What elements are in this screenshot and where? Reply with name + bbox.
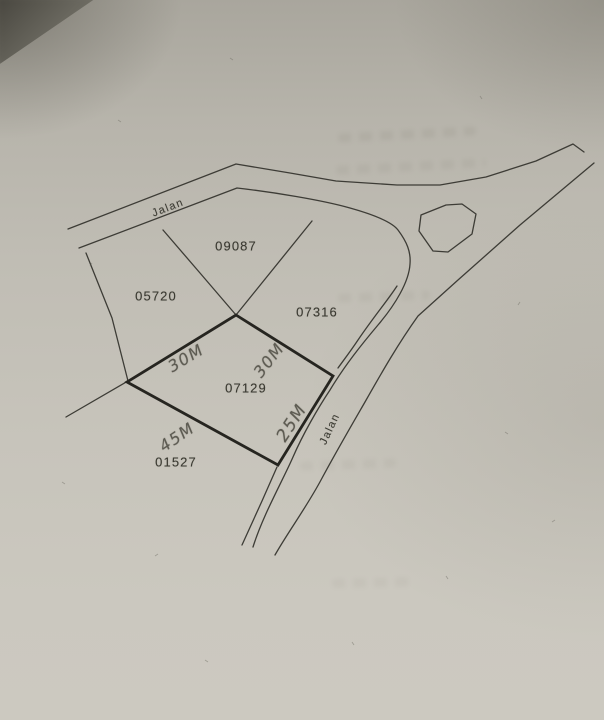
boundary-west-05720 (86, 253, 128, 381)
junction-arc-line (338, 286, 397, 368)
frontage-line (242, 467, 277, 545)
road-upper-outer-line (68, 144, 584, 229)
road-east-edge-line (275, 163, 594, 555)
scanned-survey-sheet: Jalan Jalan 09087 05720 07316 07129 0152… (0, 0, 604, 720)
parcel-label-07316: 07316 (296, 305, 338, 320)
parcel-label-05720: 05720 (135, 289, 177, 304)
parcel-label-01527: 01527 (155, 455, 197, 470)
parcel-label-07129: 07129 (225, 381, 267, 396)
boundary-09087-07316 (236, 221, 312, 315)
survey-linework (0, 0, 604, 720)
parcel-label-09087: 09087 (215, 239, 257, 254)
boundary-left-extension (66, 381, 128, 417)
junction-island-outline (419, 204, 476, 252)
